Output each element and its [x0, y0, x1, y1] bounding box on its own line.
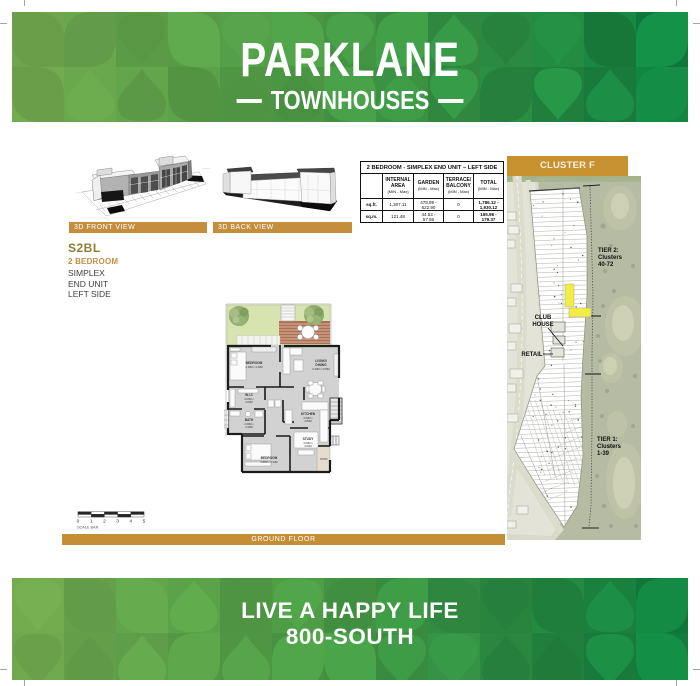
- svg-text:2.80M: 2.80M: [304, 419, 311, 423]
- svg-text:Clusters: Clusters: [597, 444, 622, 450]
- svg-text:2.00M: 2.00M: [245, 400, 252, 404]
- svg-text:DINING: DINING: [315, 363, 327, 367]
- svg-text:2.20M: 2.20M: [245, 425, 252, 429]
- svg-text:CLUB: CLUB: [535, 315, 552, 321]
- svg-text:3.80M x 3.30M: 3.80M x 3.30M: [260, 460, 277, 464]
- svg-text:HOUSE: HOUSE: [532, 322, 553, 328]
- svg-text:TIER 2:: TIER 2:: [598, 248, 619, 254]
- svg-text:PATIO: PATIO: [320, 457, 327, 461]
- svg-text:1-39: 1-39: [597, 451, 610, 457]
- svg-text:4: 4: [129, 519, 132, 525]
- svg-text:6.20M x 3.50M: 6.20M x 3.50M: [312, 367, 329, 371]
- svg-text:3.00M: 3.00M: [304, 444, 311, 448]
- svg-text:BEDROOM: BEDROOM: [246, 361, 263, 365]
- svg-text:RETAIL: RETAIL: [521, 352, 543, 358]
- svg-text:1: 1: [90, 519, 93, 525]
- svg-text:STUDY: STUDY: [303, 437, 315, 441]
- svg-text:Clusters: Clusters: [598, 255, 623, 261]
- svg-text:4.30M x 3.40M: 4.30M x 3.40M: [245, 365, 262, 369]
- svg-text:TIER 1:: TIER 1:: [597, 437, 618, 443]
- svg-text:SCALE BAR: SCALE BAR: [77, 526, 99, 530]
- svg-text:KITCHEN: KITCHEN: [301, 412, 316, 416]
- svg-text:BEDROOM: BEDROOM: [261, 456, 278, 460]
- svg-text:5: 5: [143, 519, 146, 525]
- svg-text:3: 3: [116, 519, 119, 525]
- svg-text:0: 0: [77, 519, 80, 525]
- svg-text:W.I.C: W.I.C: [245, 393, 253, 397]
- svg-text:2: 2: [103, 519, 106, 525]
- svg-text:40-72: 40-72: [598, 262, 614, 268]
- svg-text:BATH: BATH: [245, 418, 254, 422]
